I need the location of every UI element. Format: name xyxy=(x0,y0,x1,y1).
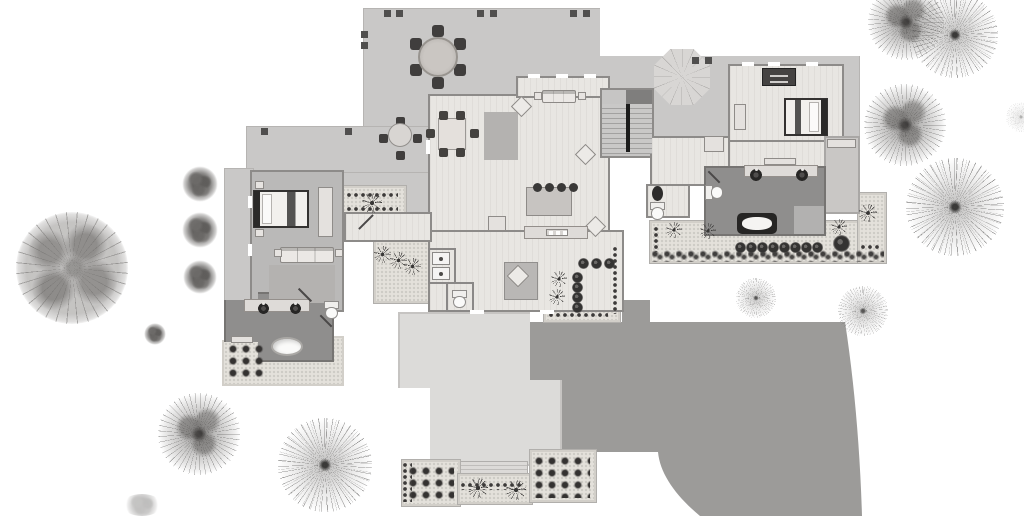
spiky-plant xyxy=(404,258,421,275)
plant-grid xyxy=(228,344,264,380)
stove-burners xyxy=(546,229,568,236)
nightstand xyxy=(255,229,264,237)
window xyxy=(426,140,430,154)
side-table xyxy=(578,92,586,100)
side-table xyxy=(534,92,542,100)
window xyxy=(768,62,780,66)
shrub xyxy=(578,258,589,269)
shrub xyxy=(812,242,823,253)
deck-post xyxy=(583,10,590,17)
window xyxy=(528,74,540,78)
window xyxy=(556,74,568,78)
tree-branchy-small xyxy=(736,278,776,318)
end-table xyxy=(335,249,343,257)
deck-post xyxy=(384,10,391,17)
plant-grid xyxy=(408,466,454,502)
vanity-sink xyxy=(796,169,808,181)
deck-post xyxy=(361,31,368,38)
patio-umbrella xyxy=(654,49,710,105)
deck-dining-table xyxy=(410,29,466,85)
border-dots xyxy=(548,312,608,317)
deck-post xyxy=(261,128,268,135)
floor-plan-canvas xyxy=(0,0,1024,516)
spiky-plant xyxy=(551,271,567,287)
hedge-row xyxy=(652,250,884,262)
vanity-sink xyxy=(750,169,762,181)
shrub xyxy=(801,242,812,253)
bush xyxy=(183,260,217,294)
toilet xyxy=(452,290,465,307)
spiky-plant xyxy=(666,222,682,238)
shrub xyxy=(757,242,768,253)
shower xyxy=(704,136,724,152)
tree-branchy xyxy=(906,158,1004,256)
border-dots xyxy=(653,226,658,252)
sofa xyxy=(542,90,576,103)
bed-guest xyxy=(253,190,309,228)
dining-table xyxy=(428,112,476,156)
shrub xyxy=(790,242,801,253)
window xyxy=(806,62,818,66)
wardrobe xyxy=(318,187,333,237)
freestanding-tub xyxy=(737,213,777,234)
border-dots xyxy=(402,462,412,502)
plant-grid xyxy=(534,456,590,498)
dresser xyxy=(762,68,796,86)
spiky-plant xyxy=(831,219,847,235)
deck-post xyxy=(477,10,484,17)
patio-steps xyxy=(458,461,528,474)
window xyxy=(584,74,596,78)
planter-dots xyxy=(346,206,398,212)
bench xyxy=(734,104,746,130)
master-bath-inset xyxy=(794,206,824,234)
bush xyxy=(144,323,166,345)
nightstand xyxy=(255,181,264,189)
closet-shelf xyxy=(827,139,856,148)
hall-left xyxy=(344,212,432,242)
shrub xyxy=(735,242,746,253)
bush-faint xyxy=(122,494,162,516)
bush xyxy=(182,212,218,248)
window xyxy=(248,196,252,208)
washer xyxy=(432,252,450,265)
bed-master xyxy=(784,98,828,136)
console-table xyxy=(764,158,796,165)
shrub xyxy=(779,242,790,253)
tree-branchy xyxy=(278,418,372,512)
deck-post xyxy=(361,42,368,49)
deck-post xyxy=(490,10,497,17)
round-bush xyxy=(833,235,850,252)
driveway-connector-path xyxy=(622,300,650,323)
planter-dots xyxy=(346,192,398,198)
spiky-plant xyxy=(549,289,565,305)
window xyxy=(540,310,554,314)
border-dots xyxy=(860,244,882,250)
shrub xyxy=(591,258,602,269)
stair-landing xyxy=(626,90,652,104)
toilet xyxy=(650,202,663,218)
kitchen-island xyxy=(526,187,572,216)
deck-post xyxy=(692,57,699,64)
window xyxy=(470,310,484,314)
toilet xyxy=(705,187,722,200)
tree-bushy xyxy=(158,393,240,475)
tree-round-large xyxy=(16,212,128,324)
tree-bushy xyxy=(864,84,946,166)
shrub xyxy=(746,242,757,253)
bath-shelf xyxy=(231,336,253,343)
border-dots xyxy=(460,482,524,490)
vanity-sink xyxy=(258,303,269,314)
spiky-plant xyxy=(859,204,877,222)
window xyxy=(742,62,754,66)
area-rug xyxy=(269,265,335,303)
powder-sink xyxy=(652,186,663,201)
deck-post xyxy=(570,10,577,17)
end-table xyxy=(274,249,282,257)
dryer xyxy=(432,267,450,280)
vanity-sink xyxy=(290,303,301,314)
toilet xyxy=(324,301,337,318)
area-rug xyxy=(484,112,518,160)
tree-branchy-small xyxy=(838,286,888,336)
deck-post xyxy=(396,10,403,17)
window xyxy=(248,244,252,256)
deck-post xyxy=(705,57,712,64)
deck-cafe-table xyxy=(386,121,414,149)
cabinet xyxy=(488,216,506,231)
shrub xyxy=(768,242,779,253)
deck-post xyxy=(345,128,352,135)
stair-rail xyxy=(626,104,630,152)
bush xyxy=(182,166,218,202)
sofa xyxy=(280,247,334,263)
spiky-plant xyxy=(700,223,716,239)
oval-tub xyxy=(271,337,303,356)
border-dots xyxy=(612,246,617,314)
spiky-plant xyxy=(374,246,391,263)
